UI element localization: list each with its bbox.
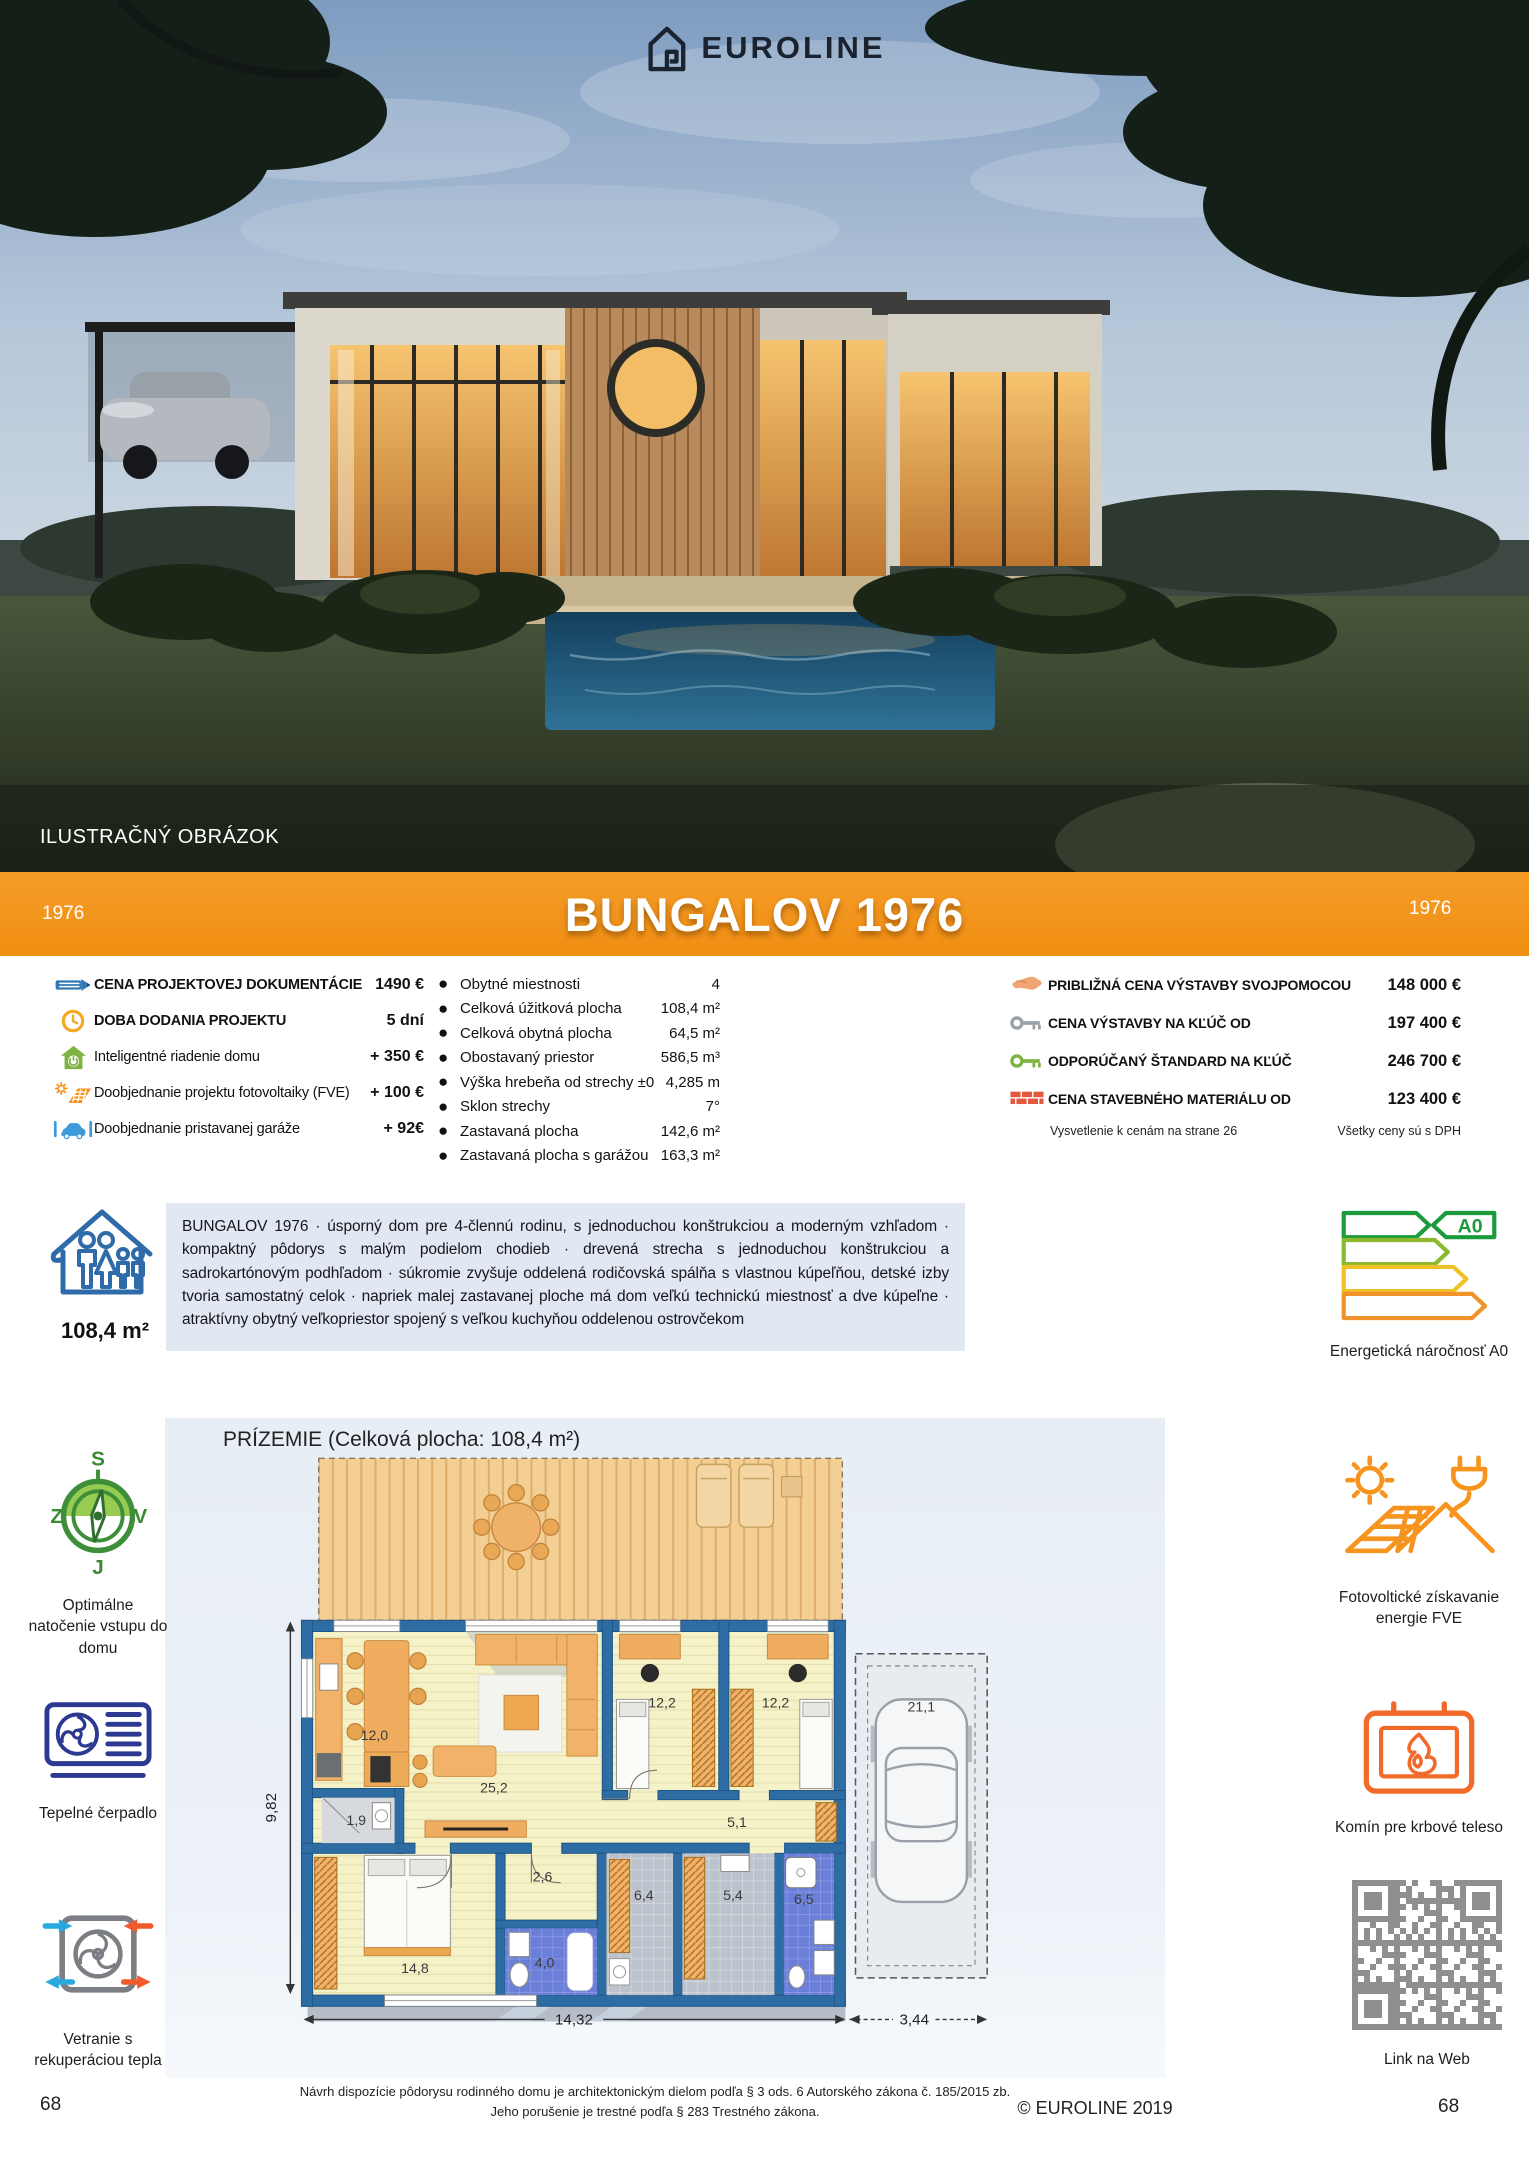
pencil-icon: [52, 974, 94, 996]
param-row: ●Zastavaná plocha s garážou163,3 m²: [432, 1144, 720, 1169]
room-label: 6,4: [634, 1888, 654, 1904]
energy-rating-icon: A0: [1340, 1210, 1498, 1322]
energy-badge: A0: [1458, 1216, 1483, 1238]
price-row: ODPORÚČANÝ ŠTANDARD NA KĽÚČ 246 700 €: [1006, 1048, 1461, 1074]
house-photo: EUROLINE ILUSTRAČNÝ OBRÁZOK: [0, 0, 1529, 872]
compass-east: V: [133, 1505, 147, 1528]
spec-row: Doobjednanie projektu fotovoltaiky (FVE)…: [52, 1080, 424, 1106]
room-label: 5,4: [723, 1888, 743, 1904]
fve-block: Fotovoltické získavanie energie FVE: [1328, 1450, 1510, 1630]
fve-label: Fotovoltické získavanie energie FVE: [1328, 1587, 1510, 1630]
model-code-right: 1976: [1409, 896, 1529, 922]
note-vat: Všetky ceny sú s DPH: [1337, 1124, 1461, 1138]
bullet: ●: [432, 1023, 460, 1043]
param-row: ●Výška hrebeňa od strechy ±04,285 m: [432, 1070, 720, 1095]
price-notes: Vysvetlenie k cenám na strane 26 Všetky …: [1006, 1124, 1461, 1138]
page-number-left: 68: [40, 2094, 61, 2116]
construction-prices-column: PRIBLIŽNÁ CENA VÝSTAVBY SVOJPOMOCOU 148 …: [1006, 972, 1461, 1138]
house-description: BUNGALOV 1976 · úsporný dom pre 4-člennú…: [166, 1203, 965, 1351]
compass-label: Optimálne natočenie vstupu do domu: [28, 1595, 168, 1659]
garage-car: [871, 1699, 972, 1902]
bullet: ●: [432, 1121, 460, 1141]
usable-area-value: 108,4 m²: [30, 1318, 180, 1344]
ventilation-block: Vetranie s rekuperáciou tepla: [28, 1898, 168, 2072]
room-label: 12,2: [762, 1695, 790, 1711]
round-window: [611, 343, 701, 433]
room-label: 6,5: [794, 1892, 814, 1908]
copyright: © EUROLINE 2019: [985, 2098, 1205, 2119]
dim-width: 14,32: [555, 2011, 593, 2028]
solar-icon: [52, 1081, 94, 1105]
room-label: 5,1: [727, 1815, 747, 1831]
bullet: ●: [432, 1072, 460, 1092]
qr-label: Link na Web: [1352, 2049, 1502, 2070]
spec-row: CENA PROJEKTOVEJ DOKUMENTÁCIE 1490 €: [52, 972, 424, 998]
bullet: ●: [432, 974, 460, 994]
bullet: ●: [432, 1048, 460, 1068]
spec-row: DOBA DODANIA PROJEKTU 5 dní: [52, 1008, 424, 1034]
floorplan-panel: PRÍZEMIE (Celková plocha: 108,4 m²): [165, 1418, 1165, 2078]
title-banner: 1976 BUNGALOV 1976 1976: [0, 872, 1529, 956]
room-label: 25,2: [480, 1781, 508, 1797]
bullet: ●: [432, 1146, 460, 1166]
house-rendering: [283, 292, 1110, 580]
photo-caption: ILUSTRAČNÝ OBRÁZOK: [40, 826, 279, 849]
house-photo-illustration: [0, 0, 1529, 872]
room-label: 12,2: [648, 1695, 676, 1711]
room-label: 1,9: [346, 1813, 366, 1829]
specs-section: CENA PROJEKTOVEJ DOKUMENTÁCIE 1490 € DOB…: [0, 972, 1529, 1187]
compass-icon: S Z V J: [46, 1448, 150, 1576]
energy-rating-label: Energetická náročnosť A0: [1328, 1341, 1510, 1362]
page-title: BUNGALOV 1976: [120, 887, 1409, 942]
note-prices-page: Vysvetlenie k cenám na strane 26: [1050, 1124, 1237, 1138]
brand-name: EUROLINE: [701, 30, 885, 66]
hand-icon: [1006, 973, 1048, 997]
legal-disclaimer: Návrh dispozície pôdorysu rodinného domu…: [250, 2082, 1060, 2122]
qr-code: [1352, 1880, 1502, 2030]
deck-table: [492, 1503, 541, 1552]
compass-block: S Z V J Optimálne natočenie vstupu do do…: [28, 1448, 168, 1659]
ventilation-icon: [42, 1898, 154, 2010]
room-label: 21,1: [908, 1700, 936, 1716]
energy-rating-block: A0 Energetická náročnosť A0: [1328, 1210, 1510, 1362]
photovoltaic-icon: [1340, 1450, 1498, 1568]
key-gray-icon: [1006, 1012, 1048, 1034]
heat-pump-icon: [43, 1700, 153, 1784]
param-row: ●Celková úžitková plocha108,4 m²: [432, 997, 720, 1022]
room-label: 2,6: [533, 1870, 553, 1886]
smart-home-icon: [52, 1045, 94, 1070]
room-label: 12,0: [361, 1728, 389, 1744]
euroline-logo: EUROLINE: [643, 24, 885, 72]
price-row: PRIBLIŽNÁ CENA VÝSTAVBY SVOJPOMOCOU 148 …: [1006, 972, 1461, 998]
spec-row: Doobjednanie pristavanej garáže + 92€: [52, 1116, 424, 1142]
bullet: ●: [432, 1097, 460, 1117]
compass-north: S: [91, 1448, 105, 1471]
pricing-options-column: CENA PROJEKTOVEJ DOKUMENTÁCIE 1490 € DOB…: [52, 972, 424, 1152]
model-code-left: 1976: [0, 903, 120, 925]
heatpump-label: Tepelné čerpadlo: [28, 1803, 168, 1824]
family-house-icon: [42, 1202, 162, 1303]
fireplace-icon: [1360, 1700, 1478, 1798]
disclaimer-line: Jeho porušenie je trestné podľa § 283 Tr…: [250, 2102, 1060, 2122]
compass-south: J: [92, 1556, 104, 1576]
bricks-icon: [1006, 1088, 1048, 1110]
spec-row: Inteligentné riadenie domu + 350 €: [52, 1044, 424, 1070]
price-row: CENA VÝSTAVBY NA KĽÚČ OD 197 400 €: [1006, 1010, 1461, 1036]
fireplace-block: Komín pre krbové teleso: [1334, 1700, 1504, 1838]
floor-plan-drawing: 9,82 14,32 3,44 12,0 25,2 1,9 2,6 12,2 1…: [263, 1446, 1053, 2054]
ventilation-label: Vetranie s rekuperáciou tepla: [28, 2029, 168, 2072]
dim-height: 9,82: [263, 1793, 280, 1823]
param-row: ●Celková obytná plocha64,5 m²: [432, 1021, 720, 1046]
dim-garage-width: 3,44: [899, 2011, 929, 2028]
parameters-column: ●Obytné miestnosti4 ●Celková úžitková pl…: [432, 972, 720, 1168]
garage-icon: [52, 1118, 94, 1140]
param-row: ●Obytné miestnosti4: [432, 972, 720, 997]
fireplace-label: Komín pre krbové teleso: [1334, 1817, 1504, 1838]
room-label: 4,0: [535, 1956, 555, 1972]
euroline-house-icon: [643, 24, 689, 72]
param-row: ●Zastavaná plocha142,6 m²: [432, 1119, 720, 1144]
catalog-page: EUROLINE ILUSTRAČNÝ OBRÁZOK 1976 BUNGALO…: [0, 0, 1529, 2160]
key-green-icon: [1006, 1050, 1048, 1072]
qr-block: Link na Web: [1352, 1880, 1502, 2070]
price-row: CENA STAVEBNÉHO MATERIÁLU OD 123 400 €: [1006, 1086, 1461, 1112]
param-row: ●Obostavaný priestor586,5 m³: [432, 1046, 720, 1071]
page-number-right: 68: [1438, 2094, 1459, 2120]
room-label: 14,8: [401, 1961, 429, 1977]
deck-lounger: [696, 1464, 730, 1527]
clock-icon: [52, 1009, 94, 1033]
heatpump-block: Tepelné čerpadlo: [28, 1700, 168, 1824]
deck-lounger: [739, 1464, 773, 1527]
disclaimer-line: Návrh dispozície pôdorysu rodinného domu…: [250, 2082, 1060, 2102]
param-row: ●Sklon strechy7°: [432, 1095, 720, 1120]
bullet: ●: [432, 999, 460, 1019]
